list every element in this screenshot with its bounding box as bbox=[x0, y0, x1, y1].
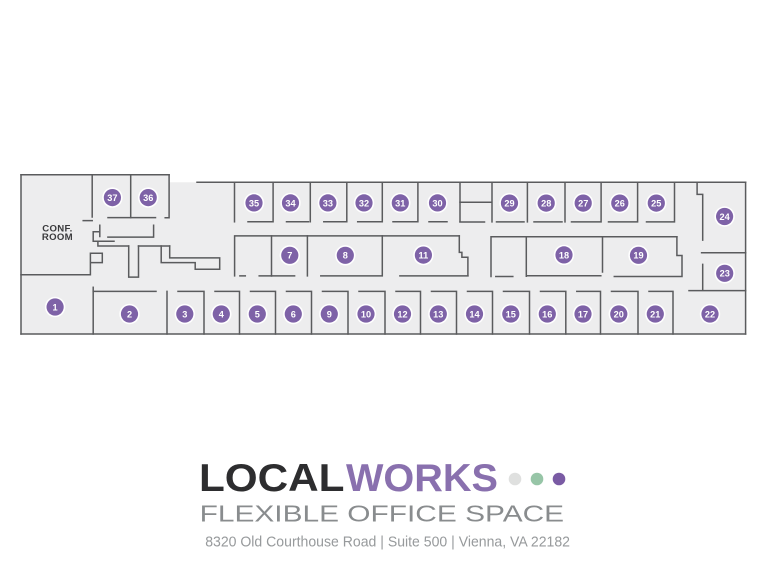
svg-text:18: 18 bbox=[559, 250, 569, 260]
svg-text:FLEXIBLE OFFICE SPACE: FLEXIBLE OFFICE SPACE bbox=[200, 501, 564, 527]
svg-text:35: 35 bbox=[249, 198, 259, 208]
svg-text:28: 28 bbox=[541, 199, 551, 209]
svg-text:23: 23 bbox=[720, 269, 730, 279]
svg-text:4: 4 bbox=[219, 309, 225, 319]
svg-text:20: 20 bbox=[614, 309, 624, 319]
svg-text:14: 14 bbox=[469, 309, 480, 319]
svg-text:29: 29 bbox=[504, 199, 514, 209]
svg-text:25: 25 bbox=[651, 199, 661, 209]
svg-text:11: 11 bbox=[419, 251, 429, 261]
svg-text:24: 24 bbox=[719, 212, 730, 222]
svg-text:31: 31 bbox=[395, 198, 405, 208]
svg-text:32: 32 bbox=[359, 198, 369, 208]
svg-text:30: 30 bbox=[432, 198, 442, 208]
svg-text:5: 5 bbox=[255, 309, 260, 319]
svg-text:27: 27 bbox=[578, 199, 588, 209]
svg-text:33: 33 bbox=[323, 198, 333, 208]
svg-text:22: 22 bbox=[705, 309, 715, 319]
svg-text:7: 7 bbox=[287, 251, 292, 261]
svg-text:8: 8 bbox=[343, 251, 348, 261]
svg-text:16: 16 bbox=[542, 309, 552, 319]
svg-text:17: 17 bbox=[578, 309, 588, 319]
svg-text:2: 2 bbox=[127, 309, 132, 319]
svg-text:6: 6 bbox=[291, 309, 296, 319]
svg-text:26: 26 bbox=[615, 199, 625, 209]
svg-text:13: 13 bbox=[433, 309, 443, 319]
svg-text:21: 21 bbox=[650, 309, 660, 319]
svg-text:9: 9 bbox=[327, 309, 332, 319]
svg-text:LOCAL: LOCAL bbox=[199, 457, 345, 500]
svg-text:10: 10 bbox=[361, 309, 371, 319]
svg-text:WORKS: WORKS bbox=[346, 457, 498, 500]
svg-text:36: 36 bbox=[143, 193, 153, 203]
svg-text:3: 3 bbox=[182, 309, 187, 319]
svg-text:19: 19 bbox=[633, 251, 643, 261]
svg-text:8320 Old Courthouse Road | Sui: 8320 Old Courthouse Road | Suite 500 | V… bbox=[205, 534, 570, 550]
svg-text:ROOM: ROOM bbox=[42, 232, 73, 243]
svg-text:12: 12 bbox=[397, 309, 407, 319]
svg-text:1: 1 bbox=[53, 302, 58, 312]
svg-text:37: 37 bbox=[107, 193, 117, 203]
svg-text:15: 15 bbox=[506, 309, 516, 319]
svg-text:34: 34 bbox=[285, 198, 296, 208]
